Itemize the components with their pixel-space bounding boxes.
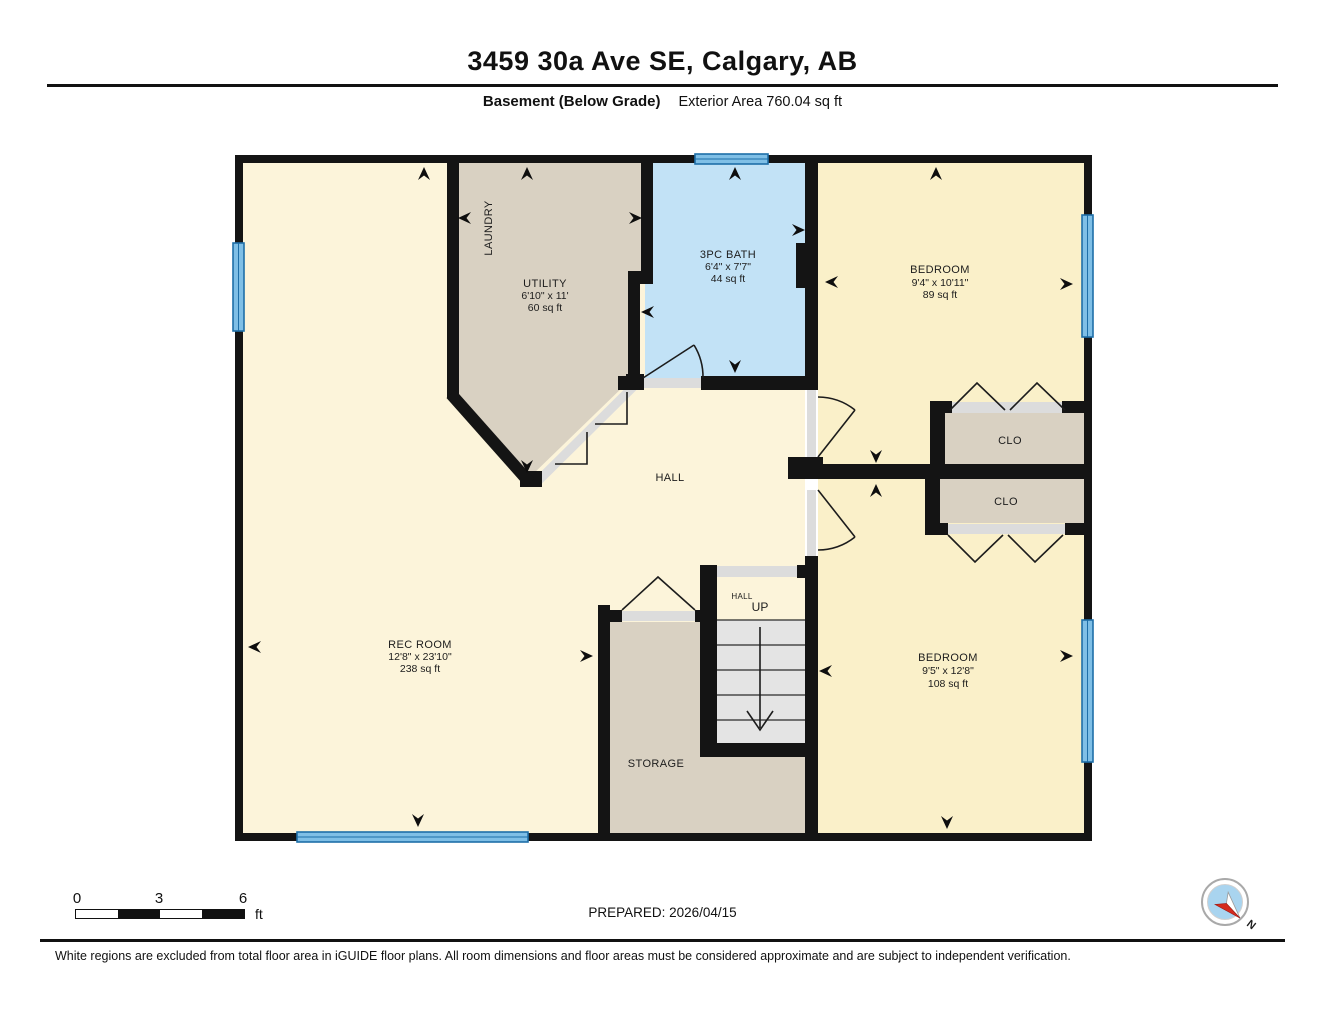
bath-area: 44 sq ft: [711, 273, 746, 285]
bedroom-bottom-label: BEDROOM: [918, 652, 978, 664]
bedroom-top-label: BEDROOM: [910, 264, 970, 276]
bedroom-bottom-dims: 9'5" x 12'8": [922, 665, 974, 677]
storage-label: STORAGE: [628, 758, 684, 770]
utility-area: 60 sq ft: [528, 302, 563, 314]
rec-room-dims: 12'8" x 23'10": [388, 651, 452, 663]
rec-room-area: 238 sq ft: [400, 663, 440, 675]
hall-label: HALL: [655, 472, 684, 484]
stair-up-label: UP: [752, 600, 769, 614]
bath-dims: 6'4" x 7'7": [705, 261, 751, 273]
closet-top-label: CLO: [998, 435, 1022, 447]
rec-room-label: REC ROOM: [388, 639, 452, 651]
bedroom-bottom-area: 108 sq ft: [928, 678, 968, 690]
footer-divider: [40, 939, 1285, 942]
bedroom-top-dims: 9'4" x 10'11": [912, 277, 969, 289]
laundry-label: LAUNDRY: [483, 200, 495, 255]
bath-label: 3PC BATH: [700, 249, 756, 261]
stair-hall-label: HALL: [731, 592, 752, 601]
floor-plan: LAUNDRY UTILITY 6'10" x 11' 60 sq ft 3PC…: [0, 0, 1325, 1024]
utility-dims: 6'10" x 11': [521, 290, 568, 302]
prepared-date: PREPARED: 2026/04/15: [0, 905, 1325, 920]
bedroom-top-area: 89 sq ft: [923, 289, 958, 301]
utility-label: UTILITY: [523, 278, 567, 290]
compass-rose: N: [1197, 874, 1257, 934]
compass-north-label: N: [1244, 918, 1257, 932]
closet-bottom-label: CLO: [994, 496, 1018, 508]
disclaimer-text: White regions are excluded from total fl…: [55, 949, 1285, 963]
